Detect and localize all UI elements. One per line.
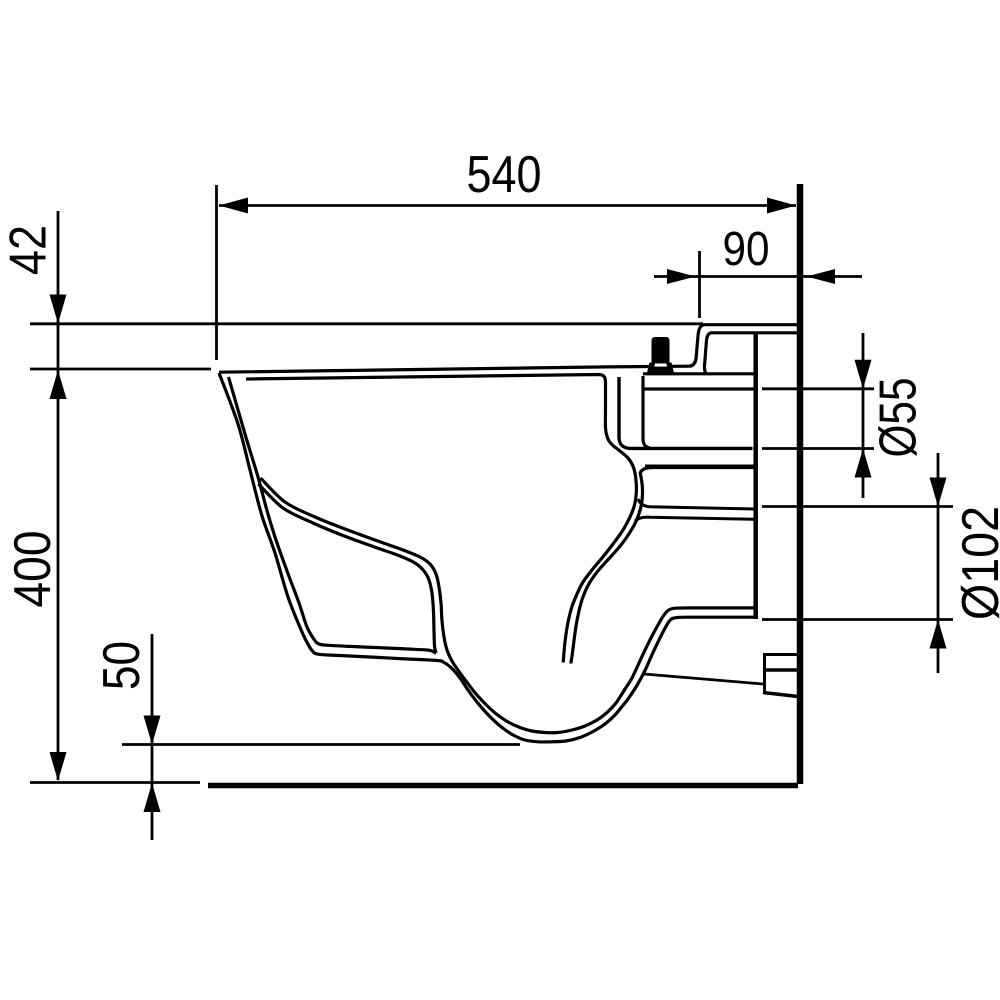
svg-text:400: 400 (4, 531, 62, 608)
svg-text:Ø55: Ø55 (870, 378, 928, 458)
svg-text:90: 90 (723, 223, 770, 276)
svg-text:42: 42 (0, 225, 58, 275)
svg-text:540: 540 (467, 146, 542, 204)
svg-text:Ø102: Ø102 (952, 506, 1000, 620)
svg-text:50: 50 (93, 641, 151, 690)
